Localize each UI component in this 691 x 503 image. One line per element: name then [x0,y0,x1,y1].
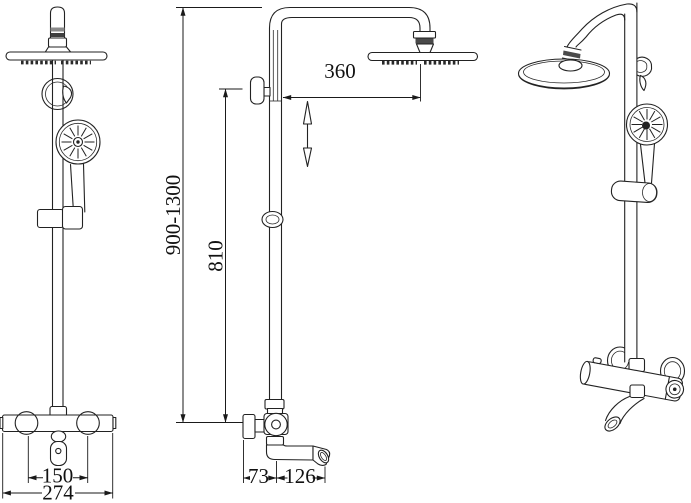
dim-label-810: 810 [204,240,228,272]
front-view: 150 274 [0,7,116,503]
spout-side [267,445,314,460]
pipe-band-light [51,28,65,32]
dim-900-1300: 900-1300 [161,8,262,423]
dim-label-274: 274 [42,481,74,503]
dim-360: 360 [283,59,421,102]
mixer-valve-side [243,400,331,466]
top-pipe-front [45,7,71,53]
wall-plate [243,415,255,439]
valve-knob-side [265,413,287,435]
arm-band-dark [563,51,581,59]
slider-knob-side [251,77,271,104]
dim-label-73: 73 [248,464,269,488]
pivot-joint-front [42,79,73,110]
pipe-band-dark [51,33,65,37]
dim-label-126: 126 [284,464,316,488]
dim-810: 810 [204,89,243,423]
side-view: 360 [243,8,478,489]
dim-label-360: 360 [324,59,356,83]
inlet-nub-right [113,418,116,429]
rain-head-side [368,53,478,63]
slider-bracket-3d [611,180,658,203]
slider-bracket-front [38,207,83,230]
head-boss-3d [559,60,582,71]
head-connector-side [414,32,436,53]
inlet-nub-left [0,418,3,429]
pivot-joint-3d [637,57,652,90]
top-arm-side [270,8,431,32]
technical-drawing: 150 274 900-1300 810 [0,0,691,503]
dim-126: 126 [277,464,326,488]
rain-head-front [6,52,107,63]
dim-label-900-1300: 900-1300 [161,175,185,256]
diverter-knob [51,431,65,442]
perspective-view [519,3,687,434]
spout-3d [602,397,644,434]
diverter-lever [63,86,72,103]
mixer-valve-front [0,407,116,466]
up-down-arrow-icon [304,102,312,167]
shower-column-front [53,61,64,409]
hose-ring-side [262,212,283,228]
diverter-lever-3d [640,76,646,91]
